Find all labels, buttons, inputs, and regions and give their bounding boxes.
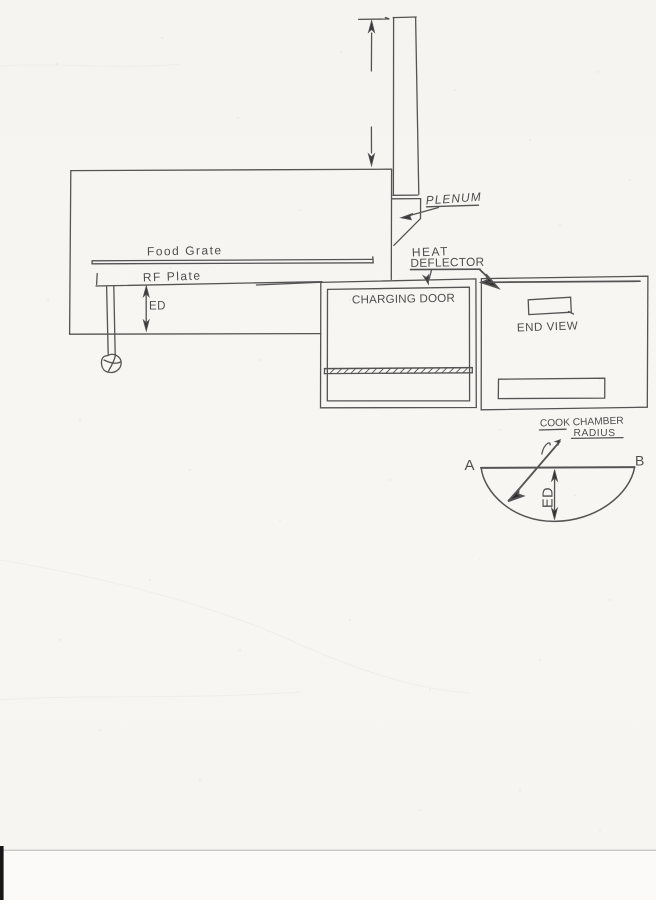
svg-text:END VIEW: END VIEW (517, 319, 579, 334)
svg-text:ED: ED (541, 487, 557, 508)
svg-text:A: A (465, 457, 475, 474)
svg-text:CHARGING DOOR: CHARGING DOOR (352, 292, 455, 307)
svg-text:DEFLECTOR: DEFLECTOR (410, 255, 484, 270)
svg-text:Food Grate: Food Grate (147, 243, 223, 258)
svg-text:RADIUS: RADIUS (574, 428, 616, 439)
svg-text:ED: ED (149, 301, 166, 313)
svg-text:RF Plate: RF Plate (143, 268, 202, 284)
svg-text:B: B (635, 453, 644, 469)
